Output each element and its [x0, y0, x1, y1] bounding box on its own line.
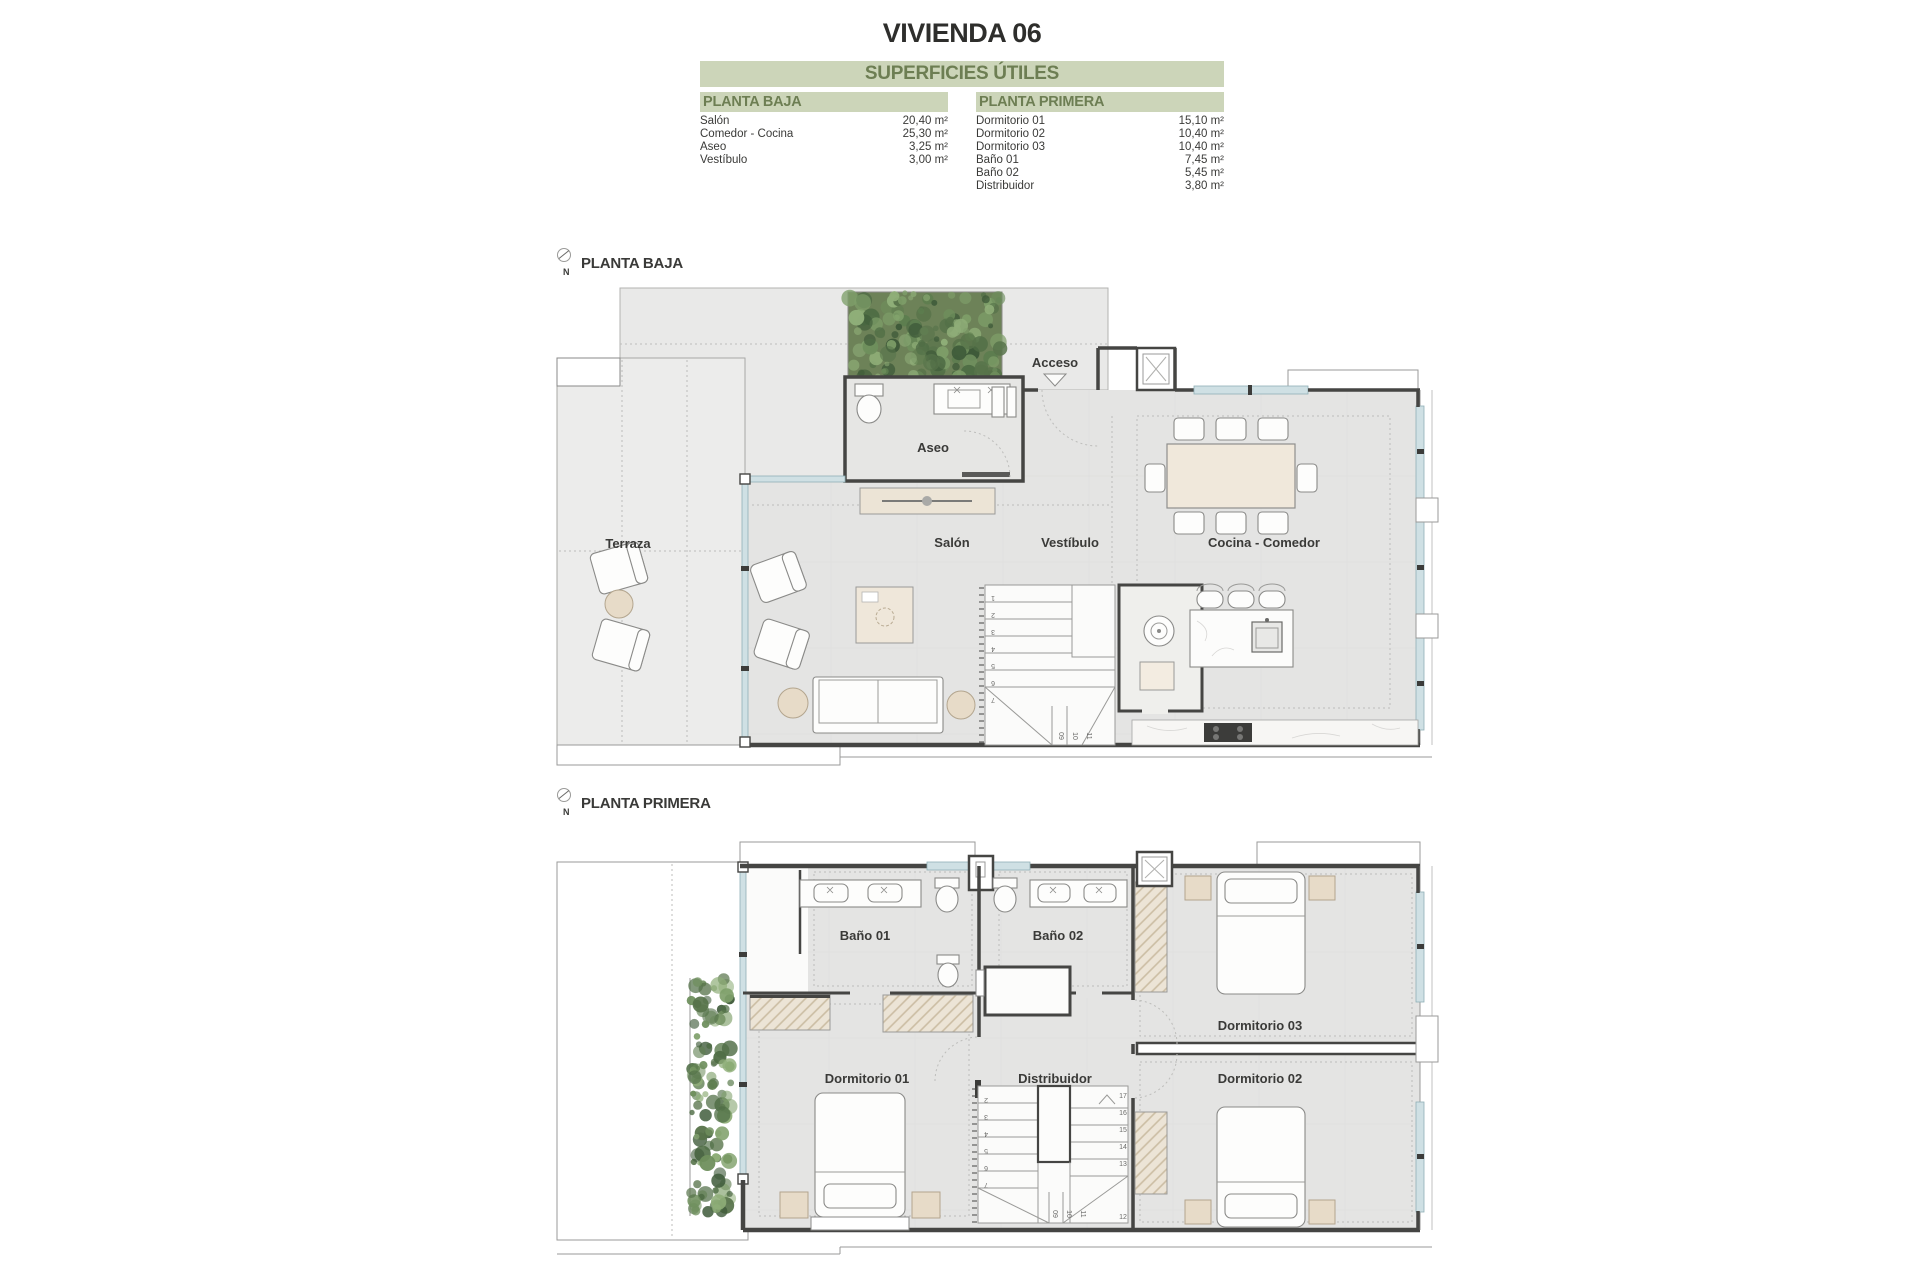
terrace-table [605, 590, 633, 618]
areas-column-header: PLANTA PRIMERA [976, 92, 1224, 112]
svg-text:3: 3 [984, 1113, 988, 1120]
area-row: Vestíbulo3,00 m² [700, 154, 948, 167]
svg-text:17: 17 [1119, 1093, 1127, 1100]
area-row-value: 5,45 m² [1185, 167, 1224, 180]
page-title: VIVIENDA 06 [700, 18, 1224, 49]
nightstand [912, 1192, 940, 1218]
svg-text:N: N [563, 267, 570, 277]
svg-text:3: 3 [991, 628, 995, 635]
areas-column-header: PLANTA BAJA [700, 92, 948, 112]
svg-text:10: 10 [1071, 732, 1078, 740]
room-label-salon: Salón [934, 535, 969, 550]
area-row-value: 3,25 m² [909, 141, 948, 154]
sliding-door [962, 472, 1010, 477]
area-row-name: Vestíbulo [700, 154, 747, 167]
svg-text:11: 11 [1085, 732, 1092, 739]
area-row: Aseo3,25 m² [700, 141, 948, 154]
toilet [935, 878, 959, 912]
door-leaf [976, 970, 984, 996]
plan-title: PLANTA BAJA [581, 255, 683, 272]
area-row-value: 10,40 m² [1179, 141, 1224, 154]
area-row-name: Dormitorio 01 [976, 115, 1045, 128]
area-row-value: 15,10 m² [1179, 115, 1224, 128]
room-label-acceso: Acceso [1032, 355, 1078, 370]
dressing-area [745, 868, 808, 992]
room-label-terraza: Terraza [605, 536, 651, 551]
room-label-dorm3: Dormitorio 03 [1218, 1018, 1303, 1033]
cooktop-icon [1204, 723, 1252, 742]
svg-text:5: 5 [991, 662, 995, 669]
svg-text:09: 09 [1051, 1210, 1058, 1218]
area-row-name: Baño 02 [976, 167, 1019, 180]
svg-text:11: 11 [1079, 1210, 1086, 1217]
nightstand [1185, 1200, 1211, 1224]
toilet [855, 384, 883, 423]
shaft [1137, 852, 1172, 886]
toilet [937, 955, 959, 987]
room-label-dorm1: Dormitorio 01 [825, 1071, 910, 1086]
area-row: Comedor - Cocina25,30 m² [700, 128, 948, 141]
areas-column-planta-baja: PLANTA BAJA Salón20,40 m²Comedor - Cocin… [700, 92, 948, 167]
areas-rows: Dormitorio 0115,10 m²Dormitorio 0210,40 … [976, 112, 1224, 192]
plan-baja-label: N PLANTA BAJA [554, 246, 683, 280]
areas-column-planta-primera: PLANTA PRIMERA Dormitorio 0115,10 m²Dorm… [976, 92, 1224, 192]
plan-primera-label: N PLANTA PRIMERA [554, 786, 711, 820]
north-icon: N [554, 246, 574, 280]
svg-text:6: 6 [984, 1164, 988, 1171]
svg-text:10: 10 [1065, 1210, 1072, 1218]
step-numbers: 091011 [1051, 1210, 1086, 1218]
svg-text:7: 7 [984, 1181, 988, 1188]
areas-table-header: SUPERFICIES ÚTILES [700, 61, 1224, 87]
east-wall [1416, 866, 1438, 1230]
area-row-value: 10,40 m² [1179, 128, 1224, 141]
floor-plan-sheet: VIVIENDA 06 SUPERFICIES ÚTILES PLANTA BA… [0, 0, 1920, 1280]
area-row-value: 20,40 m² [903, 115, 948, 128]
room-label-bano2: Baño 02 [1033, 928, 1084, 943]
area-row-name: Baño 01 [976, 154, 1019, 167]
room-label-dorm2: Dormitorio 02 [1218, 1071, 1303, 1086]
kitchen-counter [1132, 720, 1418, 745]
side-table [947, 691, 975, 719]
duct [969, 856, 993, 890]
svg-text:09: 09 [1057, 732, 1064, 740]
east-wall [1416, 390, 1438, 745]
area-row-value: 3,80 m² [1185, 180, 1224, 193]
kitchen-island [1190, 584, 1293, 667]
console-table [860, 488, 995, 514]
area-row-name: Comedor - Cocina [700, 128, 793, 141]
sofa [813, 677, 943, 733]
coffee-table [856, 587, 913, 643]
area-row-name: Dormitorio 02 [976, 128, 1045, 141]
step-numbers: 091011 [1057, 732, 1092, 740]
nightstand [780, 1192, 808, 1218]
svg-text:2: 2 [984, 1096, 988, 1103]
aseo-room: Aseo [845, 377, 1023, 481]
dining-table [1167, 444, 1295, 508]
party-wall [1137, 1043, 1420, 1054]
areas-rows: Salón20,40 m²Comedor - Cocina25,30 m²Ase… [700, 112, 948, 167]
area-row: Baño 025,45 m² [976, 167, 1224, 180]
svg-text:16: 16 [1119, 1110, 1127, 1117]
area-row-name: Dormitorio 03 [976, 141, 1045, 154]
svg-text:1: 1 [991, 594, 995, 601]
stair-void-box [985, 967, 1070, 1015]
svg-text:15: 15 [1119, 1127, 1127, 1134]
area-row: Distribuidor3,80 m² [976, 180, 1224, 193]
north-icon: N [554, 786, 574, 820]
bathroom2-fixtures [993, 878, 1127, 912]
planta-baja-drawing: Aseo Acceso [552, 286, 1442, 786]
room-label-vestibulo: Vestíbulo [1041, 535, 1099, 550]
plan-title: PLANTA PRIMERA [581, 795, 711, 812]
planta-primera-drawing: 234567 1716151413 091011 12 Baño 01 Baño… [552, 832, 1442, 1262]
area-row-value: 3,00 m² [909, 154, 948, 167]
nightstand [1185, 876, 1211, 900]
area-row: Dormitorio 0310,40 m² [976, 141, 1224, 154]
svg-text:14: 14 [1119, 1144, 1127, 1151]
svg-text:4: 4 [984, 1130, 988, 1137]
svg-text:4: 4 [991, 645, 995, 652]
area-row-name: Distribuidor [976, 180, 1034, 193]
area-row: Baño 017,45 m² [976, 154, 1224, 167]
staircase: 1234567 091011 [979, 585, 1115, 745]
svg-text:2: 2 [991, 611, 995, 618]
stairwell-void [1038, 1086, 1070, 1162]
step-number-12: 12 [1119, 1214, 1127, 1221]
side-table [778, 688, 808, 718]
nightstand [1309, 876, 1335, 900]
svg-text:5: 5 [984, 1147, 988, 1154]
room-label-distribuidor: Distribuidor [1018, 1071, 1092, 1086]
staircase: 234567 1716151413 091011 12 [972, 1086, 1128, 1223]
svg-text:N: N [563, 807, 570, 817]
room-label-bano1: Baño 01 [840, 928, 891, 943]
area-row-value: 25,30 m² [903, 128, 948, 141]
area-row-value: 7,45 m² [1185, 154, 1224, 167]
nightstand [1309, 1200, 1335, 1224]
toilet [993, 878, 1017, 912]
room-label-aseo: Aseo [917, 440, 949, 455]
svg-text:7: 7 [991, 696, 995, 703]
area-row: Dormitorio 0210,40 m² [976, 128, 1224, 141]
roof-eave [1257, 842, 1420, 866]
area-row-name: Aseo [700, 141, 726, 154]
area-row-name: Salón [700, 115, 729, 128]
area-row: Dormitorio 0115,10 m² [976, 115, 1224, 128]
area-row: Salón20,40 m² [700, 115, 948, 128]
svg-text:13: 13 [1119, 1161, 1127, 1168]
room-label-cocina: Cocina - Comedor [1208, 535, 1320, 550]
svg-text:6: 6 [991, 679, 995, 686]
